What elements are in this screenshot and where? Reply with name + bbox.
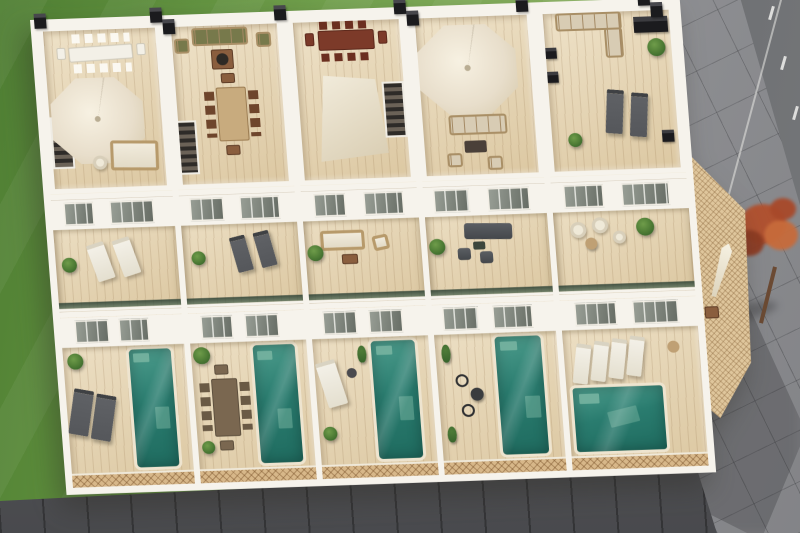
pool-reflection xyxy=(525,395,542,417)
sliding-door xyxy=(632,300,680,325)
sun-lounger-white xyxy=(590,341,609,383)
side-table xyxy=(704,306,719,318)
sun-lounger-white xyxy=(608,338,627,380)
sliding-door xyxy=(63,202,95,226)
patio-rear-wall xyxy=(432,301,556,335)
terrace-rear-wall xyxy=(301,188,419,222)
townhouse-block xyxy=(30,0,716,495)
chimney xyxy=(637,0,650,6)
sliding-door xyxy=(368,309,404,333)
roof-stairs xyxy=(384,83,406,136)
potted-palm xyxy=(67,353,84,370)
sliding-door xyxy=(313,193,347,217)
plunge-pool xyxy=(494,335,549,454)
building-grid xyxy=(30,0,716,495)
chair xyxy=(220,440,235,450)
tree-foliage xyxy=(770,198,796,220)
house4-roof-terrace xyxy=(409,10,544,182)
house2-patio xyxy=(188,310,317,484)
house2-roof-terrace xyxy=(165,18,294,190)
plunge-pool xyxy=(129,348,180,467)
potted-plant xyxy=(323,427,338,441)
armchair xyxy=(255,32,271,47)
chair-column xyxy=(248,90,262,136)
cream-sofa xyxy=(320,229,366,250)
chair xyxy=(214,364,229,374)
sliding-door xyxy=(200,315,234,339)
armchair xyxy=(174,38,190,53)
pool-step xyxy=(500,341,518,351)
potted-plant xyxy=(647,38,666,57)
chair-row xyxy=(74,62,133,73)
chimney xyxy=(650,2,663,17)
planter-box xyxy=(662,130,675,142)
pool-reflection xyxy=(155,406,171,428)
chair-row xyxy=(71,33,130,44)
lattice-fence xyxy=(572,452,709,471)
glass-balustrade xyxy=(558,281,695,295)
plunge-pool xyxy=(370,340,423,459)
sliding-door xyxy=(563,184,605,208)
pool-step xyxy=(257,351,273,361)
chimney xyxy=(162,19,175,34)
potted-plant xyxy=(202,441,216,454)
olive-sofa xyxy=(191,26,248,46)
lattice-fence xyxy=(444,457,567,475)
pool-reflection xyxy=(607,405,640,428)
planter-box xyxy=(547,72,559,83)
parasol xyxy=(415,23,520,116)
dining-table-dark xyxy=(317,29,375,51)
sliding-door xyxy=(118,318,150,342)
round-side-table xyxy=(585,237,598,249)
sliding-door xyxy=(189,197,225,221)
wicker-armchair xyxy=(487,156,503,170)
roof-stairs xyxy=(178,122,198,172)
sliding-door xyxy=(574,302,618,326)
house2-terrace xyxy=(179,192,304,308)
sliding-door xyxy=(433,189,471,213)
house5-roof-terrace xyxy=(537,5,686,177)
potted-tree xyxy=(307,245,324,262)
house5-patio xyxy=(560,296,709,470)
rattan-sofa xyxy=(110,140,159,170)
sliding-door xyxy=(322,311,358,335)
chimney xyxy=(149,7,162,22)
patio-rear-wall xyxy=(188,310,306,344)
house3-roof-terrace xyxy=(287,14,416,186)
potted-plant xyxy=(191,251,206,265)
glass-balustrade xyxy=(309,290,426,303)
lattice-fence xyxy=(72,470,195,488)
bistro-chair xyxy=(455,374,469,387)
bistro-table xyxy=(470,387,484,400)
corner-sofa xyxy=(604,27,624,58)
terrace-rear-wall xyxy=(51,196,175,230)
tree-trunk xyxy=(759,266,777,323)
pool-step xyxy=(579,393,600,404)
sun-lounger-grey xyxy=(252,230,278,269)
house5-terrace xyxy=(551,178,696,295)
pool-step xyxy=(133,353,150,363)
potted-palm xyxy=(635,217,654,236)
chimney xyxy=(273,5,286,20)
sliding-door xyxy=(621,182,671,207)
dining-table-white xyxy=(68,43,133,62)
pool-step xyxy=(376,346,393,356)
plunge-pool xyxy=(252,344,303,463)
dark-chair xyxy=(480,251,494,263)
sun-lounger-grey xyxy=(606,89,624,134)
patio-rear-wall xyxy=(560,296,698,331)
side-table xyxy=(667,341,680,353)
chimney xyxy=(34,13,47,28)
beige-sofa xyxy=(448,113,508,135)
bistro-chair xyxy=(461,404,475,417)
coffee-table xyxy=(342,254,359,265)
tree-foliage xyxy=(764,220,798,250)
sun-lounger-white xyxy=(573,343,592,385)
sliding-door xyxy=(442,307,480,331)
aerial-render-scene xyxy=(0,0,800,533)
potted-plant xyxy=(568,133,583,147)
sun-lounger-white xyxy=(86,241,116,283)
wicker-chair xyxy=(591,217,608,234)
sliding-door xyxy=(109,200,155,224)
sliding-door xyxy=(74,319,110,343)
large-pool xyxy=(572,385,667,452)
sun-lounger-grey xyxy=(91,393,117,442)
potted-palm xyxy=(192,347,210,365)
house4-terrace xyxy=(423,183,554,299)
sun-lounger-grey xyxy=(229,234,255,273)
sliding-door xyxy=(244,314,280,338)
chair xyxy=(305,33,315,46)
coffee-table xyxy=(464,140,487,153)
potted-tree xyxy=(429,239,446,256)
patio-rear-wall xyxy=(60,314,184,348)
outdoor-kitchen xyxy=(633,16,668,33)
sliding-door xyxy=(239,195,281,219)
sun-lounger-white xyxy=(315,359,349,409)
armchair xyxy=(371,233,390,251)
sliding-door xyxy=(487,187,531,211)
lattice-fence xyxy=(200,465,317,483)
wicker-armchair xyxy=(447,153,463,167)
terrace-rear-wall xyxy=(179,192,297,226)
chair xyxy=(136,43,146,55)
pool-reflection xyxy=(399,396,415,420)
sun-lounger-grey xyxy=(68,388,94,437)
chair xyxy=(378,31,388,44)
side-table xyxy=(346,368,357,378)
terrace-rear-wall xyxy=(423,183,547,217)
sliding-door xyxy=(492,305,534,329)
terrace-rear-wall xyxy=(551,178,689,213)
glass-balustrade xyxy=(431,286,554,299)
house4-patio xyxy=(432,301,567,475)
chair xyxy=(56,48,66,60)
shade-sail xyxy=(315,74,390,162)
house3-terrace xyxy=(301,188,426,304)
sun-lounger-white xyxy=(626,335,645,377)
house1-terrace xyxy=(51,196,182,312)
sliding-door xyxy=(363,191,405,215)
sun-lounger-grey xyxy=(630,92,648,137)
dining-table xyxy=(211,378,241,437)
wicker-chair xyxy=(570,222,587,239)
chimney xyxy=(515,0,528,12)
pouf xyxy=(612,230,626,243)
pool-reflection xyxy=(277,408,293,428)
chair-column xyxy=(239,382,253,430)
house1-roof-terrace xyxy=(38,22,173,194)
glass-balustrade xyxy=(187,295,304,308)
chimney xyxy=(406,10,419,25)
pouf xyxy=(93,155,108,169)
cypress-shrub xyxy=(441,345,451,363)
chimney xyxy=(393,0,406,14)
side-table xyxy=(473,241,486,249)
glass-balustrade xyxy=(59,299,182,312)
sun-lounger-white xyxy=(111,236,141,278)
house3-patio xyxy=(310,305,439,479)
lattice-fence xyxy=(322,461,439,479)
chair xyxy=(220,73,235,83)
planter-box xyxy=(545,48,557,59)
potted-plant xyxy=(61,258,77,273)
house1-patio xyxy=(60,314,195,488)
patio-rear-wall xyxy=(310,305,428,339)
dark-chair xyxy=(457,248,471,260)
folded-parasol xyxy=(708,242,734,299)
cypress-shrub xyxy=(447,426,457,442)
dining-table-wood xyxy=(216,87,250,142)
chair-column xyxy=(204,92,218,138)
anthracite-sofa xyxy=(464,223,513,239)
chair xyxy=(226,145,241,155)
cypress-shrub xyxy=(357,345,367,362)
chair-row xyxy=(321,52,374,62)
